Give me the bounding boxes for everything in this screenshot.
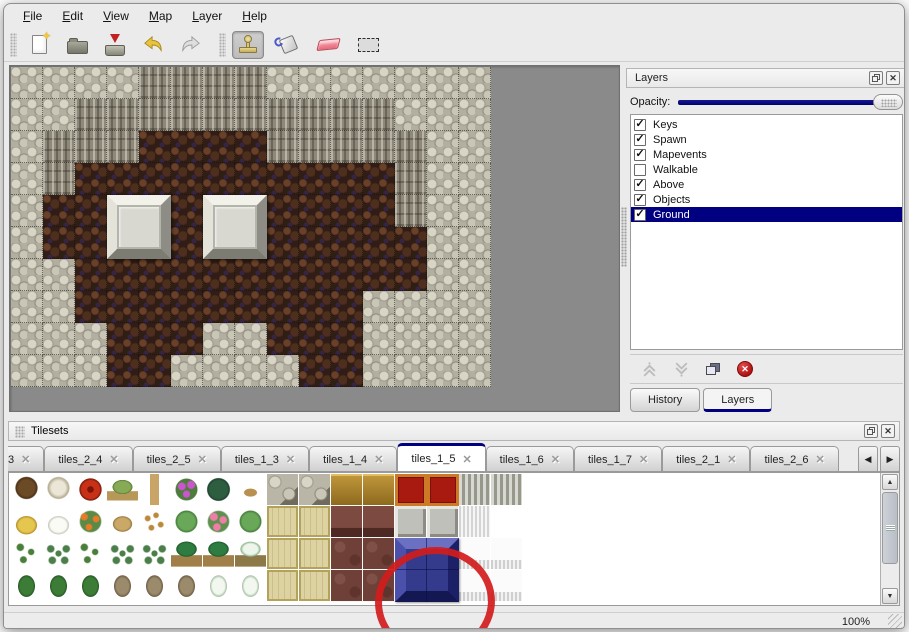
menu-help[interactable]: Help <box>233 6 276 26</box>
tileset-tile-fringe[interactable] <box>491 538 523 570</box>
page-with-star-icon: ✦ <box>32 35 47 54</box>
tileset-tile-bush[interactable] <box>43 538 75 570</box>
map-tile[interactable] <box>395 99 427 131</box>
tileset-tile-sprout[interactable] <box>75 538 107 570</box>
map-tile[interactable] <box>331 323 363 355</box>
tileset-tile-conetree[interactable] <box>75 570 107 602</box>
tab-close-icon[interactable]: ✕ <box>109 453 118 466</box>
toolbar-grip-2[interactable] <box>219 33 226 57</box>
map-tile[interactable] <box>427 131 459 163</box>
map-tile[interactable] <box>75 163 107 195</box>
map-tile[interactable] <box>363 259 395 291</box>
tileset-tile-stone[interactable] <box>267 474 299 506</box>
map-tile[interactable] <box>267 227 299 259</box>
map-tile[interactable] <box>459 259 491 291</box>
tileset-tab-3[interactable]: 3✕ <box>8 446 44 472</box>
tileset-tile-browntile[interactable] <box>331 538 363 570</box>
map-tile[interactable] <box>75 291 107 323</box>
float-panel-button[interactable] <box>869 71 883 85</box>
map-tile[interactable] <box>395 195 427 227</box>
map-tile[interactable] <box>459 355 491 387</box>
layer-visibility-checkbox[interactable] <box>634 164 646 176</box>
tileset-tile-empty[interactable] <box>491 506 523 538</box>
tileset-tile-goldfloor[interactable] <box>267 538 299 570</box>
tileset-tile-gray3d[interactable] <box>427 506 459 538</box>
tileset-tile-deadtwist[interactable] <box>107 570 139 602</box>
chevron-up-icon <box>641 361 658 378</box>
tab-scroll-buttons: ◀▶ <box>856 446 900 472</box>
map-tile[interactable] <box>11 323 43 355</box>
map-tile[interactable] <box>331 131 363 163</box>
layer-visibility-checkbox[interactable]: ✓ <box>634 209 646 221</box>
tileset-tile-bush[interactable] <box>107 538 139 570</box>
tab-close-icon[interactable]: ✕ <box>639 453 648 466</box>
map-tile[interactable] <box>107 291 139 323</box>
map-tile[interactable] <box>235 163 267 195</box>
tileset-tile-bush[interactable] <box>139 538 171 570</box>
layer-name-label: Mapevents <box>653 149 707 161</box>
folder-icon <box>67 41 88 54</box>
map-tile[interactable] <box>299 195 331 227</box>
tileset-tile-sprout[interactable] <box>11 538 43 570</box>
map-tile[interactable] <box>75 355 107 387</box>
map-tile[interactable] <box>331 227 363 259</box>
open-button[interactable] <box>61 31 93 59</box>
map-tile[interactable] <box>139 291 171 323</box>
tileset-tile-goldfloor[interactable] <box>299 570 331 602</box>
tileset-tile-stump[interactable] <box>107 474 139 506</box>
map-tile[interactable] <box>235 259 267 291</box>
new-file-button[interactable]: ✦ <box>23 31 55 59</box>
map-tile[interactable] <box>299 99 331 131</box>
map-tile[interactable] <box>299 259 331 291</box>
redo-button[interactable] <box>175 31 207 59</box>
map-tile[interactable] <box>331 67 363 99</box>
tileset-tab-tiles_2_1[interactable]: tiles_2_1✕ <box>662 446 750 472</box>
map-tile[interactable] <box>75 323 107 355</box>
map-tile[interactable] <box>267 67 299 99</box>
map-tile[interactable] <box>75 259 107 291</box>
tileset-tile-goldfloor[interactable] <box>299 538 331 570</box>
map-tile[interactable] <box>11 163 43 195</box>
map-tile[interactable] <box>459 227 491 259</box>
map-tile[interactable] <box>267 355 299 387</box>
map-tile[interactable] <box>139 131 171 163</box>
stamp-icon <box>239 35 257 55</box>
fill-tool-button[interactable] <box>272 31 304 59</box>
tileset-tile-snowcone[interactable] <box>203 570 235 602</box>
map-tile[interactable] <box>331 355 363 387</box>
menu-layer[interactable]: Layer <box>183 6 231 26</box>
map-tile[interactable] <box>459 163 491 195</box>
map-canvas[interactable] <box>9 65 620 412</box>
map-tile[interactable] <box>203 163 235 195</box>
close-panel-button[interactable]: ✕ <box>886 71 900 85</box>
opacity-row: Opacity: <box>630 92 903 112</box>
eraser-tool-button[interactable] <box>312 31 344 59</box>
layer-visibility-checkbox[interactable]: ✓ <box>634 119 646 131</box>
layer-row-mapevents[interactable]: ✓Mapevents <box>631 147 902 162</box>
scrollbar-thumb[interactable] <box>882 492 898 564</box>
map-tile[interactable] <box>171 195 203 227</box>
map-tile[interactable] <box>203 355 235 387</box>
map-tile[interactable] <box>75 227 107 259</box>
map-tile[interactable] <box>139 323 171 355</box>
map-tile[interactable] <box>11 131 43 163</box>
map-tile[interactable] <box>427 99 459 131</box>
map-tile[interactable] <box>75 99 107 131</box>
tab-close-icon[interactable]: ✕ <box>21 453 30 466</box>
tileset-tile-hay[interactable] <box>11 506 43 538</box>
layers-panel-title: Layers <box>635 72 668 84</box>
layer-row-above[interactable]: ✓Above <box>631 177 902 192</box>
tileset-tile-redcarpet[interactable] <box>395 474 427 506</box>
map-tile[interactable] <box>267 163 299 195</box>
tileset-tile-deadtwist[interactable] <box>139 570 171 602</box>
map-tile[interactable] <box>171 291 203 323</box>
map-tile[interactable] <box>299 355 331 387</box>
layer-row-objects[interactable]: ✓Objects <box>631 192 902 207</box>
tab-close-icon[interactable]: ✕ <box>727 453 736 466</box>
menu-bar: FileEditViewMapLayerHelp <box>4 4 904 28</box>
map-tile[interactable] <box>139 163 171 195</box>
map-tile[interactable] <box>107 323 139 355</box>
pillar-object[interactable] <box>203 195 267 259</box>
tileset-tile-snowmound[interactable] <box>43 506 75 538</box>
tileset-tile-pinkflower[interactable] <box>203 506 235 538</box>
map-tile[interactable] <box>363 355 395 387</box>
tileset-tab-label: tiles_2_6 <box>764 454 808 466</box>
map-tile[interactable] <box>395 323 427 355</box>
map-tile[interactable] <box>395 131 427 163</box>
tileset-tile-purplebush[interactable] <box>171 474 203 506</box>
layer-row-spawn[interactable]: ✓Spawn <box>631 132 902 147</box>
map-tile[interactable] <box>299 131 331 163</box>
map-tile[interactable] <box>299 227 331 259</box>
map-tile[interactable] <box>107 67 139 99</box>
delete-layer-button[interactable]: ✕ <box>734 358 756 380</box>
map-tile[interactable] <box>171 67 203 99</box>
tileset-tile-goldwood[interactable] <box>363 474 395 506</box>
save-button[interactable] <box>99 31 131 59</box>
tileset-tile-conetree[interactable] <box>11 570 43 602</box>
map-tile[interactable] <box>363 227 395 259</box>
float-tilesets-button[interactable] <box>864 424 878 438</box>
map-tile[interactable] <box>75 131 107 163</box>
tileset-tile-whitefluff[interactable] <box>459 506 491 538</box>
tileset-tile-leaves[interactable] <box>139 506 171 538</box>
tab-close-icon[interactable]: ✕ <box>374 453 383 466</box>
map-tile[interactable] <box>267 131 299 163</box>
map-tile[interactable] <box>363 195 395 227</box>
map-tile[interactable] <box>299 67 331 99</box>
map-tile[interactable] <box>331 195 363 227</box>
zoom-level-label: 100% <box>842 616 870 628</box>
map-tile[interactable] <box>427 67 459 99</box>
duplicate-layer-button[interactable] <box>702 358 724 380</box>
tileset-tab-tiles_2_5[interactable]: tiles_2_5✕ <box>133 446 221 472</box>
tileset-tile-trunk[interactable] <box>139 474 171 506</box>
layer-visibility-checkbox[interactable]: ✓ <box>634 134 646 146</box>
layer-row-walkable[interactable]: Walkable <box>631 162 902 177</box>
map-tile[interactable] <box>43 131 75 163</box>
menu-edit[interactable]: Edit <box>53 6 92 26</box>
tab-close-icon[interactable]: ✕ <box>198 453 207 466</box>
curved-arrow-left-icon <box>142 35 164 55</box>
map-tile[interactable] <box>43 67 75 99</box>
map-tile[interactable] <box>43 99 75 131</box>
map-tile[interactable] <box>395 227 427 259</box>
dock-tab-history[interactable]: History <box>630 388 700 412</box>
layer-name-label: Above <box>653 179 684 191</box>
pillar-object[interactable] <box>107 195 171 259</box>
map-tile[interactable] <box>363 163 395 195</box>
tab-close-icon[interactable]: ✕ <box>816 453 825 466</box>
map-tile[interactable] <box>43 291 75 323</box>
layers-dock: Layers ✕ Opacity: ✓Keys✓Spawn✓MapeventsW… <box>626 62 905 416</box>
map-tile[interactable] <box>299 323 331 355</box>
menu-view[interactable]: View <box>94 6 138 26</box>
menu-map[interactable]: Map <box>140 6 181 26</box>
central-area: Layers ✕ Opacity: ✓Keys✓Spawn✓MapeventsW… <box>4 62 904 416</box>
tileset-tile-goldfloor[interactable] <box>267 506 299 538</box>
map-tile[interactable] <box>395 259 427 291</box>
map-tile[interactable] <box>363 67 395 99</box>
map-tile[interactable] <box>427 355 459 387</box>
map-tile[interactable] <box>11 291 43 323</box>
map-tile[interactable] <box>203 259 235 291</box>
map-tile[interactable] <box>43 195 75 227</box>
map-tile[interactable] <box>203 99 235 131</box>
map-tile[interactable] <box>395 355 427 387</box>
map-tile[interactable] <box>235 131 267 163</box>
map-tile[interactable] <box>267 323 299 355</box>
map-tile[interactable] <box>267 195 299 227</box>
tilesets-panel-titlebar: Tilesets ✕ <box>8 421 900 441</box>
map-tile[interactable] <box>139 355 171 387</box>
pillar-face <box>117 205 161 249</box>
map-tile[interactable] <box>11 259 43 291</box>
tileset-tab-tiles_1_5[interactable]: tiles_1_5✕ <box>397 443 485 472</box>
tileset-tile-goldwood[interactable] <box>331 474 363 506</box>
map-tile[interactable] <box>299 291 331 323</box>
map-tile[interactable] <box>331 291 363 323</box>
move-layer-down-button[interactable] <box>670 358 692 380</box>
close-tilesets-button[interactable]: ✕ <box>881 424 895 438</box>
map-tile[interactable] <box>43 163 75 195</box>
map-tile[interactable] <box>11 67 43 99</box>
tileset-tile-browntile[interactable] <box>331 570 363 602</box>
tileset-tile-fern[interactable] <box>203 474 235 506</box>
tileset-tile-brownwood[interactable] <box>331 506 363 538</box>
map-tile[interactable] <box>75 67 107 99</box>
tileset-tile-snowcone[interactable] <box>235 570 267 602</box>
map-tile[interactable] <box>171 323 203 355</box>
tileset-tab-label: tiles_1_4 <box>323 454 367 466</box>
paint-bucket-icon <box>278 35 298 55</box>
map-tile[interactable] <box>299 163 331 195</box>
tileset-tile-redbloom[interactable] <box>75 474 107 506</box>
resize-grip[interactable] <box>888 614 902 628</box>
map-tile[interactable] <box>171 131 203 163</box>
dock-tab-layers[interactable]: Layers <box>703 388 772 412</box>
tileset-tab-bar: 3✕tiles_2_4✕tiles_2_5✕tiles_1_3✕tiles_1_… <box>8 443 900 472</box>
opacity-slider[interactable] <box>678 94 903 110</box>
map-tile[interactable] <box>331 259 363 291</box>
dashed-rectangle-icon <box>358 38 379 52</box>
scroll-tabs-right-button[interactable]: ▶ <box>880 446 900 472</box>
map-tile[interactable] <box>363 323 395 355</box>
map-tile[interactable] <box>43 323 75 355</box>
tileset-tile-goldfloor[interactable] <box>267 570 299 602</box>
toolbar: ✦ <box>4 28 904 62</box>
opacity-slider-handle[interactable] <box>873 94 903 110</box>
map-tile[interactable] <box>235 355 267 387</box>
map-tile[interactable] <box>107 259 139 291</box>
map-tile[interactable] <box>171 163 203 195</box>
tileset-tile-lilypad[interactable] <box>171 506 203 538</box>
map-tile[interactable] <box>203 67 235 99</box>
tileset-tab-tiles_1_6[interactable]: tiles_1_6✕ <box>486 446 574 472</box>
map-tile[interactable] <box>11 227 43 259</box>
tileset-tile-goldfloor[interactable] <box>299 506 331 538</box>
panel-grip[interactable] <box>15 426 25 438</box>
duplicate-icon <box>706 363 720 375</box>
map-tile[interactable] <box>107 163 139 195</box>
map-tile[interactable] <box>459 67 491 99</box>
map-tile[interactable] <box>395 291 427 323</box>
menu-file[interactable]: File <box>14 6 51 26</box>
map-tile[interactable] <box>235 67 267 99</box>
tileset-tile-lilypad[interactable] <box>235 506 267 538</box>
map-tile[interactable] <box>139 67 171 99</box>
undo-button[interactable] <box>137 31 169 59</box>
map-tile[interactable] <box>427 227 459 259</box>
layer-row-ground[interactable]: ✓Ground <box>631 207 902 222</box>
tileset-tile-snowpalm[interactable] <box>235 538 267 570</box>
tileset-tile-tree[interactable] <box>11 474 43 506</box>
map-tile[interactable] <box>11 195 43 227</box>
map-tile[interactable] <box>459 131 491 163</box>
tileset-tile-grayridge[interactable] <box>491 474 523 506</box>
tileset-tile-palm[interactable] <box>203 538 235 570</box>
map-tile[interactable] <box>171 259 203 291</box>
tilesets-dock: Tilesets ✕ 3✕tiles_2_4✕tiles_2_5✕tiles_1… <box>4 416 904 612</box>
tileset-tab-tiles_1_3[interactable]: tiles_1_3✕ <box>221 446 309 472</box>
map-tile[interactable] <box>363 131 395 163</box>
map-tile[interactable] <box>427 259 459 291</box>
layer-visibility-checkbox[interactable]: ✓ <box>634 194 646 206</box>
tileset-tile-conetree[interactable] <box>43 570 75 602</box>
map-tile[interactable] <box>267 291 299 323</box>
tileset-tile-deadtree[interactable] <box>43 474 75 506</box>
tileset-tile-twig[interactable] <box>235 474 267 506</box>
tileset-tile-orangeflower[interactable] <box>75 506 107 538</box>
map-tile[interactable] <box>267 259 299 291</box>
map-tile[interactable] <box>11 99 43 131</box>
tileset-tile-palm[interactable] <box>171 538 203 570</box>
layer-visibility-checkbox[interactable]: ✓ <box>634 149 646 161</box>
map-tile[interactable] <box>171 227 203 259</box>
opacity-slider-track[interactable] <box>678 100 901 105</box>
map-tile[interactable] <box>331 99 363 131</box>
map-tile[interactable] <box>363 291 395 323</box>
select-tool-button[interactable] <box>352 31 384 59</box>
map-tile[interactable] <box>459 291 491 323</box>
toolbar-grip[interactable] <box>10 33 17 57</box>
map-tile[interactable] <box>139 99 171 131</box>
tileset-tile-gray3d[interactable] <box>395 506 427 538</box>
tileset-tile-drygrass[interactable] <box>107 506 139 538</box>
map-tile[interactable] <box>107 99 139 131</box>
map-tile[interactable] <box>171 99 203 131</box>
tileset-tab-tiles_1_7[interactable]: tiles_1_7✕ <box>574 446 662 472</box>
layer-visibility-checkbox[interactable]: ✓ <box>634 179 646 191</box>
map-tile[interactable] <box>331 163 363 195</box>
map-tile[interactable] <box>363 99 395 131</box>
move-layer-up-button[interactable] <box>638 358 660 380</box>
map-tile[interactable] <box>203 131 235 163</box>
map-tile[interactable] <box>395 67 427 99</box>
tileset-tile-fringe[interactable] <box>491 570 523 602</box>
map-tile[interactable] <box>459 323 491 355</box>
tileset-tab-label: tiles_1_7 <box>588 454 632 466</box>
map-tile[interactable] <box>395 163 427 195</box>
tileset-tile-stone[interactable] <box>299 474 331 506</box>
map-tile[interactable] <box>427 163 459 195</box>
stamp-tool-button[interactable] <box>232 31 264 59</box>
tileset-tile-redcarpet[interactable] <box>427 474 459 506</box>
map-tile[interactable] <box>203 291 235 323</box>
map-tile[interactable] <box>427 195 459 227</box>
layer-name-label: Spawn <box>653 134 687 146</box>
map-tile[interactable] <box>11 355 43 387</box>
scroll-tabs-left-button[interactable]: ◀ <box>858 446 878 472</box>
map-tile[interactable] <box>171 355 203 387</box>
map-tile[interactable] <box>267 99 299 131</box>
tileset-tile-brownwood[interactable] <box>363 506 395 538</box>
scroll-up-button[interactable]: ▲ <box>882 474 898 490</box>
tab-close-icon[interactable]: ✕ <box>551 453 560 466</box>
map-tile[interactable] <box>43 259 75 291</box>
tileset-tab-tiles_2_4[interactable]: tiles_2_4✕ <box>44 446 132 472</box>
tab-close-icon[interactable]: ✕ <box>462 453 471 466</box>
tileset-tile-grayridge[interactable] <box>459 474 491 506</box>
layer-row-keys[interactable]: ✓Keys <box>631 117 902 132</box>
map-tile[interactable] <box>427 291 459 323</box>
map-tile[interactable] <box>107 355 139 387</box>
map-tile[interactable] <box>107 131 139 163</box>
scroll-down-button[interactable]: ▼ <box>882 588 898 604</box>
tileset-tile-deadtwist[interactable] <box>171 570 203 602</box>
map-tile[interactable] <box>235 99 267 131</box>
tileset-tab-label: tiles_1_3 <box>235 454 279 466</box>
map-tile[interactable] <box>459 99 491 131</box>
tileset-tab-tiles_1_4[interactable]: tiles_1_4✕ <box>309 446 397 472</box>
tileset-tab-tiles_2_6[interactable]: tiles_2_6✕ <box>750 446 838 472</box>
map-tile[interactable] <box>459 195 491 227</box>
map-tile[interactable] <box>139 259 171 291</box>
map-tile[interactable] <box>203 323 235 355</box>
map-tile[interactable] <box>427 323 459 355</box>
screenshot-stage: FileEditViewMapLayerHelp ✦ Layers ✕ Opa <box>0 0 909 632</box>
map-tile[interactable] <box>75 195 107 227</box>
map-tile[interactable] <box>235 323 267 355</box>
map-tile[interactable] <box>235 291 267 323</box>
map-tile[interactable] <box>43 355 75 387</box>
tab-close-icon[interactable]: ✕ <box>286 453 295 466</box>
map-tile[interactable] <box>43 227 75 259</box>
